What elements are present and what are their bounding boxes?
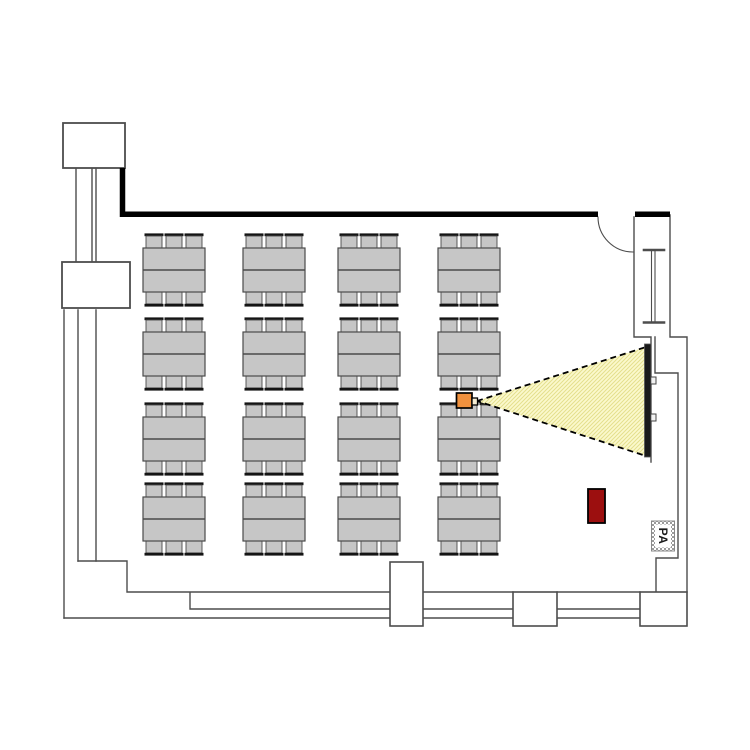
chair	[166, 376, 182, 388]
pillar-bottom-right	[513, 592, 557, 626]
chair-backrest	[145, 388, 164, 391]
chair	[186, 405, 202, 417]
chair-backrest	[440, 388, 459, 391]
chair	[166, 485, 182, 497]
chair-backrest	[340, 473, 359, 476]
chair	[286, 236, 302, 248]
chair-backrest	[380, 304, 399, 307]
chair-backrest	[245, 473, 264, 476]
chair	[186, 236, 202, 248]
chair	[246, 461, 262, 473]
chair-backrest	[380, 553, 399, 556]
pa-speaker: PA	[652, 521, 675, 551]
chair	[441, 292, 457, 304]
chair	[166, 461, 182, 473]
chair-backrest	[380, 388, 399, 391]
chair	[266, 320, 282, 332]
chair	[361, 320, 377, 332]
table-group	[338, 233, 400, 306]
chair	[461, 485, 477, 497]
chair	[441, 485, 457, 497]
chair-backrest	[285, 473, 304, 476]
chair	[481, 461, 497, 473]
chair	[266, 405, 282, 417]
chair	[286, 320, 302, 332]
chair	[381, 320, 397, 332]
chair-backrest	[460, 388, 479, 391]
lectern	[588, 489, 605, 523]
chair	[361, 376, 377, 388]
chair	[166, 236, 182, 248]
chair-backrest	[480, 473, 499, 476]
table-group	[143, 233, 205, 306]
chair	[361, 541, 377, 553]
chair-backrest	[145, 553, 164, 556]
chair	[361, 405, 377, 417]
chair-backrest	[380, 473, 399, 476]
chair	[461, 292, 477, 304]
chair	[461, 541, 477, 553]
chair	[361, 485, 377, 497]
corner-block-bottom-right	[640, 592, 687, 626]
chair-backrest	[440, 304, 459, 307]
chair	[481, 376, 497, 388]
chair	[461, 320, 477, 332]
chair-backrest	[480, 388, 499, 391]
table-group	[338, 482, 400, 555]
chair-backrest	[185, 473, 204, 476]
chair	[186, 320, 202, 332]
chair	[146, 485, 162, 497]
chair	[341, 485, 357, 497]
chair	[166, 320, 182, 332]
chair-backrest	[440, 473, 459, 476]
chair	[341, 461, 357, 473]
table-group	[338, 317, 400, 390]
chair-backrest	[285, 388, 304, 391]
table-group	[438, 317, 500, 390]
chair	[186, 376, 202, 388]
chair	[286, 485, 302, 497]
chair	[381, 376, 397, 388]
chair-backrest	[360, 304, 379, 307]
chair-backrest	[165, 304, 184, 307]
chair	[246, 541, 262, 553]
chair	[146, 292, 162, 304]
chair-backrest	[185, 388, 204, 391]
chair	[246, 292, 262, 304]
projector-body	[457, 393, 473, 408]
chair	[441, 405, 457, 417]
table-group	[438, 233, 500, 306]
chair	[146, 461, 162, 473]
chair	[361, 461, 377, 473]
chair	[341, 376, 357, 388]
chair-backrest	[460, 553, 479, 556]
chair-backrest	[440, 553, 459, 556]
pillar-mid-left	[62, 262, 130, 308]
chair	[266, 541, 282, 553]
pillar-top-left	[63, 123, 125, 168]
chair	[146, 376, 162, 388]
chair-backrest	[360, 388, 379, 391]
table-group	[243, 402, 305, 475]
chair	[246, 320, 262, 332]
chair	[381, 236, 397, 248]
chair-backrest	[265, 388, 284, 391]
chair	[481, 236, 497, 248]
chair	[286, 376, 302, 388]
chair	[266, 376, 282, 388]
chair	[341, 236, 357, 248]
table-group	[243, 317, 305, 390]
chair	[441, 461, 457, 473]
chair	[186, 485, 202, 497]
chair	[341, 405, 357, 417]
chair	[186, 461, 202, 473]
chair-backrest	[265, 304, 284, 307]
chair-backrest	[340, 553, 359, 556]
chair	[341, 541, 357, 553]
chair-backrest	[165, 388, 184, 391]
chair-backrest	[285, 304, 304, 307]
chair	[146, 541, 162, 553]
chair	[286, 541, 302, 553]
chair-backrest	[165, 553, 184, 556]
chair-backrest	[340, 304, 359, 307]
chair	[286, 461, 302, 473]
table-group	[143, 482, 205, 555]
chair-backrest	[145, 473, 164, 476]
pillar-bottom-center	[390, 562, 423, 626]
chair	[461, 461, 477, 473]
screen-bracket-bottom	[651, 414, 656, 421]
chair	[246, 405, 262, 417]
chair	[246, 376, 262, 388]
chair	[481, 541, 497, 553]
chair	[381, 461, 397, 473]
chair	[186, 292, 202, 304]
chair-backrest	[245, 304, 264, 307]
chair	[461, 376, 477, 388]
chair	[186, 541, 202, 553]
chair	[341, 292, 357, 304]
screen-bracket-top	[651, 377, 656, 384]
chair-backrest	[245, 553, 264, 556]
chair	[341, 320, 357, 332]
chair	[146, 320, 162, 332]
chair	[166, 405, 182, 417]
chair-backrest	[245, 388, 264, 391]
chair	[441, 541, 457, 553]
chair	[481, 485, 497, 497]
chair	[266, 485, 282, 497]
chair	[381, 485, 397, 497]
chair-backrest	[185, 304, 204, 307]
chair-backrest	[360, 473, 379, 476]
chair-backrest	[460, 304, 479, 307]
chair	[381, 405, 397, 417]
projector-lens	[472, 398, 478, 405]
chair-backrest	[460, 473, 479, 476]
chair	[461, 236, 477, 248]
chair-backrest	[285, 553, 304, 556]
chair	[266, 461, 282, 473]
chair	[361, 236, 377, 248]
chair-backrest	[265, 473, 284, 476]
chair-backrest	[185, 553, 204, 556]
chair	[146, 236, 162, 248]
table-group	[243, 233, 305, 306]
chair	[246, 485, 262, 497]
chair	[441, 320, 457, 332]
floor-plan: PA	[0, 0, 750, 750]
table-group	[143, 317, 205, 390]
chair	[481, 320, 497, 332]
chair	[266, 236, 282, 248]
chair	[286, 292, 302, 304]
chair	[381, 292, 397, 304]
chair	[166, 292, 182, 304]
chair-backrest	[165, 473, 184, 476]
chair-backrest	[480, 553, 499, 556]
chair	[146, 405, 162, 417]
table-group	[438, 482, 500, 555]
chair	[361, 292, 377, 304]
pa-label: PA	[656, 528, 670, 545]
chair	[441, 376, 457, 388]
chair	[246, 236, 262, 248]
chair-backrest	[340, 388, 359, 391]
screen-bar	[645, 344, 652, 457]
table-group	[143, 402, 205, 475]
chair	[166, 541, 182, 553]
floor-plan-canvas: PA	[0, 0, 750, 750]
chair	[441, 236, 457, 248]
table-group	[338, 402, 400, 475]
chair-backrest	[265, 553, 284, 556]
chair-backrest	[480, 304, 499, 307]
chair	[481, 292, 497, 304]
chair	[381, 541, 397, 553]
chair-backrest	[360, 553, 379, 556]
chair	[266, 292, 282, 304]
chair-backrest	[145, 304, 164, 307]
chair	[286, 405, 302, 417]
table-group	[438, 402, 500, 475]
table-group	[243, 482, 305, 555]
